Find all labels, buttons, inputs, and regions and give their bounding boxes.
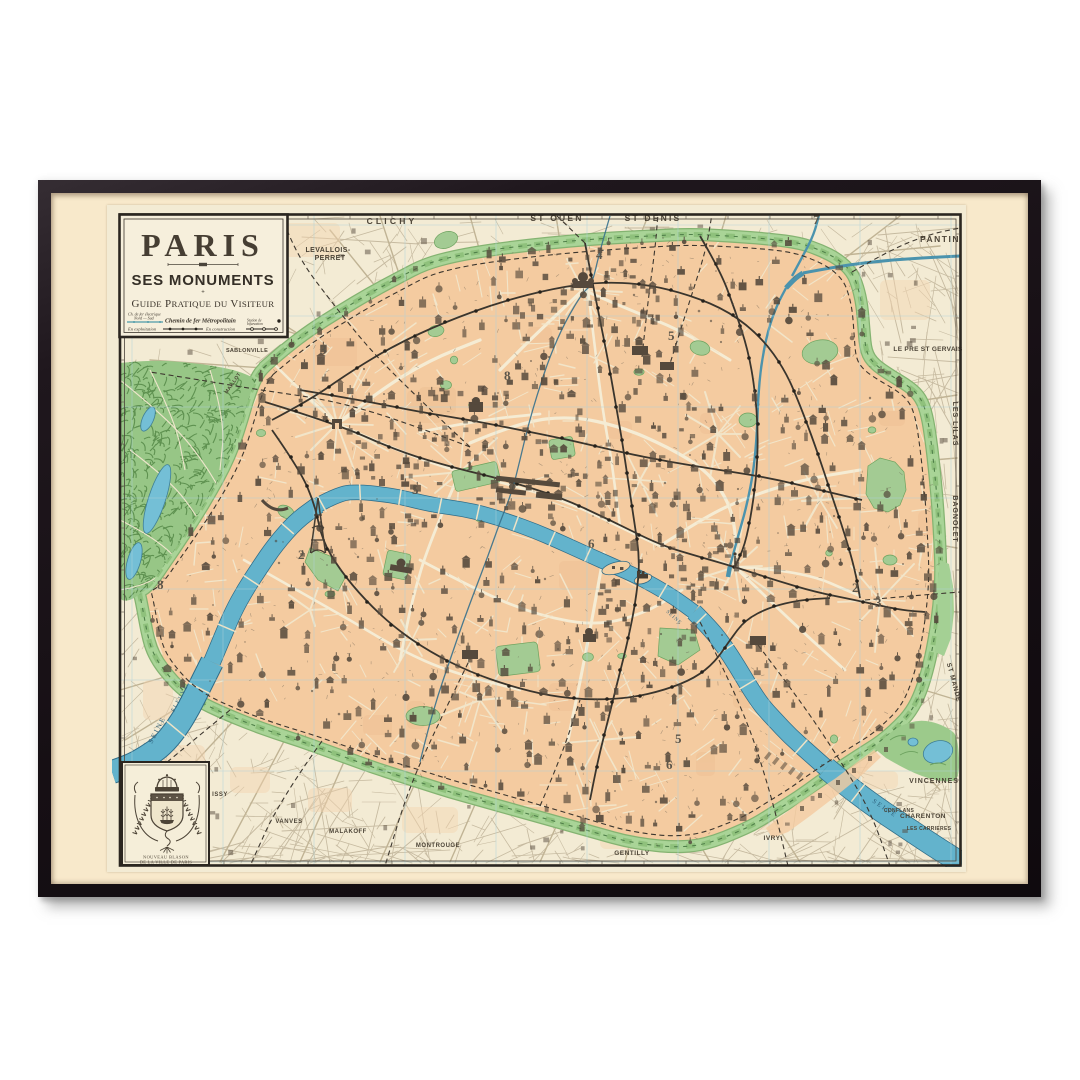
svg-text:Nord — Sud: Nord — Sud bbox=[133, 316, 155, 321]
svg-text:GENTILLY: GENTILLY bbox=[614, 850, 650, 857]
svg-text:5: 5 bbox=[412, 482, 419, 497]
svg-text:LES CARRIERES: LES CARRIERES bbox=[907, 826, 952, 832]
svg-text:1: 1 bbox=[466, 458, 473, 473]
svg-text:PERRET: PERRET bbox=[315, 255, 346, 262]
svg-text:3: 3 bbox=[320, 342, 327, 357]
svg-text:3: 3 bbox=[875, 595, 882, 610]
svg-text:En exploitation: En exploitation bbox=[127, 327, 157, 332]
svg-text:6: 6 bbox=[666, 757, 673, 772]
svg-text:MALAKOFF: MALAKOFF bbox=[329, 829, 367, 835]
svg-text:MONTROUGE: MONTROUGE bbox=[416, 843, 460, 849]
svg-text:SABLONVILLE: SABLONVILLE bbox=[226, 348, 268, 354]
svg-text:CONFLANS: CONFLANS bbox=[884, 808, 915, 814]
svg-text:5: 5 bbox=[675, 731, 682, 746]
svg-text:2: 2 bbox=[298, 547, 305, 562]
svg-text:CHARENTON: CHARENTON bbox=[900, 813, 946, 820]
svg-text:PARIS: PARIS bbox=[141, 227, 265, 263]
svg-text:LEVALLOIS-: LEVALLOIS- bbox=[305, 247, 350, 254]
svg-text:PANTIN: PANTIN bbox=[920, 234, 960, 244]
svg-text:2: 2 bbox=[852, 580, 859, 595]
svg-text:bifurcation: bifurcation bbox=[247, 322, 263, 326]
svg-text:En construction: En construction bbox=[205, 327, 236, 332]
svg-text:8: 8 bbox=[504, 368, 511, 383]
svg-text:VANVES: VANVES bbox=[275, 819, 302, 825]
svg-text:LES LILAS: LES LILAS bbox=[951, 402, 958, 447]
svg-text:DE LA VILLE DE PARIS: DE LA VILLE DE PARIS bbox=[140, 860, 193, 865]
svg-text:GUIDE PRATIQUE DU VISITEUR: GUIDE PRATIQUE DU VISITEUR bbox=[132, 298, 275, 310]
svg-text:VINCENNES: VINCENNES bbox=[909, 778, 959, 785]
svg-text:BAGNOLET: BAGNOLET bbox=[951, 495, 958, 542]
svg-text:SES MONUMENTS: SES MONUMENTS bbox=[132, 272, 275, 289]
svg-text:8: 8 bbox=[157, 577, 164, 592]
svg-text:5: 5 bbox=[668, 328, 675, 343]
svg-text:Chemin de fer Métropolitain: Chemin de fer Métropolitain bbox=[165, 319, 237, 325]
svg-text:LE PRE ST GERVAIS: LE PRE ST GERVAIS bbox=[893, 346, 962, 353]
svg-text:4: 4 bbox=[596, 247, 603, 262]
svg-text:6: 6 bbox=[588, 536, 595, 551]
svg-text:ISSY: ISSY bbox=[212, 792, 228, 798]
svg-text:+: + bbox=[201, 290, 205, 296]
svg-text:IVRY: IVRY bbox=[764, 835, 781, 842]
